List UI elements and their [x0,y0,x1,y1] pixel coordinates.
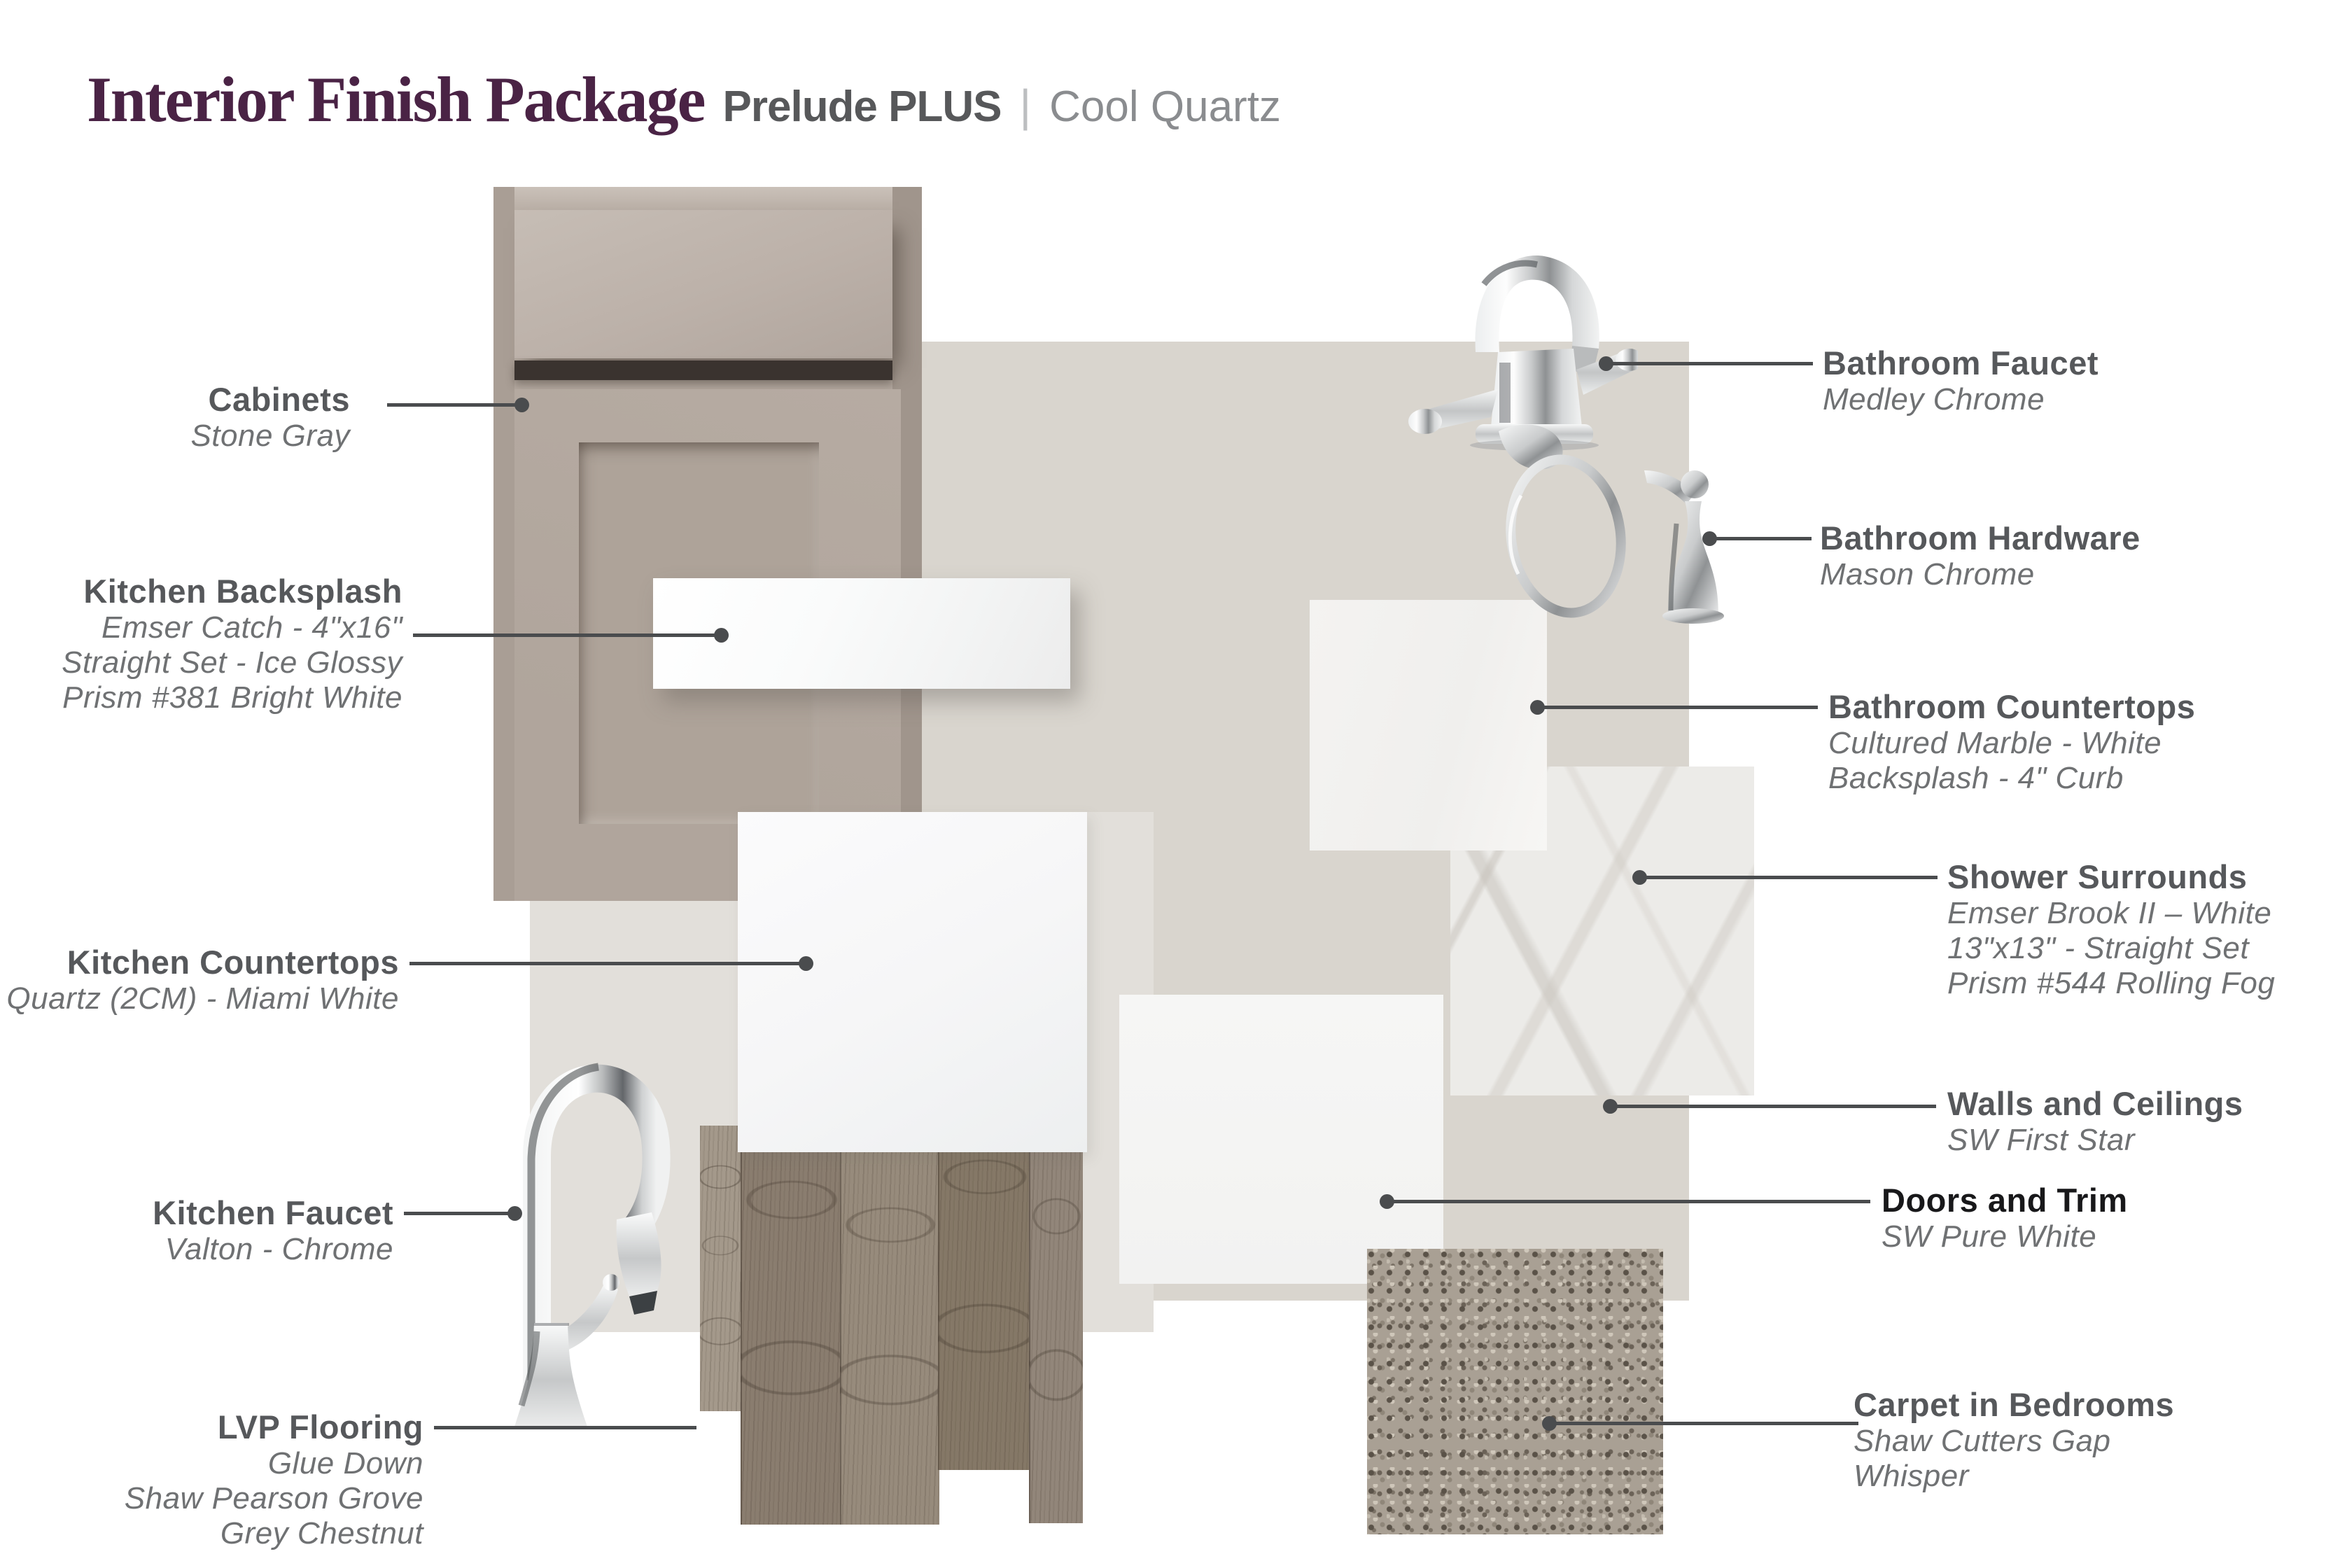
leader-kitchen-faucet [404,1212,518,1215]
label-kitchen-countertops: Kitchen Countertops Quartz (2CM) - Miami… [6,944,399,1016]
label-sub: Quartz (2CM) - Miami White [6,981,399,1016]
header: Interior Finish Package Prelude PLUS | C… [87,67,1281,132]
label-kitchen-faucet: Kitchen Faucet Valton - Chrome [153,1194,393,1267]
label-sub: Shaw Pearson Grove [125,1481,423,1516]
leader-bathroom-faucet [1603,362,1813,365]
label-title: Doors and Trim [1882,1182,2128,1219]
label-sub: Glue Down [125,1446,423,1481]
kitchen-countertop-swatch [738,812,1087,1152]
label-title: Carpet in Bedrooms [1854,1386,2174,1424]
bathroom-hardware-image [1487,412,1732,629]
label-sub: Medley Chrome [1823,382,2099,417]
label-title: Bathroom Faucet [1823,344,2099,382]
label-sub: Grey Chestnut [125,1516,423,1551]
label-title: Kitchen Countertops [6,944,399,981]
label-sub: Stone Gray [190,419,350,454]
label-title: Kitchen Backsplash [62,573,402,610]
cabinet-drawer-front [514,210,892,358]
page-title: Interior Finish Package [87,67,705,132]
finish-package-board: Interior Finish Package Prelude PLUS | C… [0,0,2347,1568]
leader-doors-trim [1384,1200,1870,1203]
label-sub: Backsplash - 4" Curb [1828,761,2195,796]
label-sub: Shaw Cutters Gap [1854,1424,2174,1459]
label-sub: Emser Brook II – White [1947,896,2275,931]
leader-carpet [1546,1422,1858,1425]
label-sub: Emser Catch - 4"x16" [62,610,402,645]
leader-walls-ceilings [1607,1105,1936,1108]
leader-kitchen-backsplash [413,633,724,637]
doors-trim-swatch [1119,995,1443,1284]
label-title: Bathroom Hardware [1820,519,2141,557]
label-sub: Cultured Marble - White [1828,726,2195,761]
leader-bathroom-hardware [1707,537,1812,540]
label-title: Bathroom Countertops [1828,688,2195,726]
label-bathroom-countertops: Bathroom Countertops Cultured Marble - W… [1828,688,2195,796]
label-carpet: Carpet in Bedrooms Shaw Cutters Gap Whis… [1854,1386,2174,1494]
label-lvp-flooring: LVP Flooring Glue Down Shaw Pearson Grov… [125,1408,423,1551]
label-sub: 13"x13" - Straight Set [1947,931,2275,966]
lvp-plank [700,1126,741,1411]
label-kitchen-backsplash: Kitchen Backsplash Emser Catch - 4"x16" … [62,573,402,715]
leader-shower-surrounds [1637,876,1938,879]
label-sub: Prism #381 Bright White [62,680,402,715]
label-sub: SW First Star [1947,1123,2243,1158]
label-bathroom-faucet: Bathroom Faucet Medley Chrome [1823,344,2099,417]
leader-lvp-flooring [434,1426,696,1429]
label-walls-ceilings: Walls and Ceilings SW First Star [1947,1085,2243,1158]
label-title: Cabinets [190,381,350,419]
label-bathroom-hardware: Bathroom Hardware Mason Chrome [1820,519,2141,592]
leader-cabinets [387,403,525,407]
title-divider: | [1020,80,1032,132]
label-doors-trim: Doors and Trim SW Pure White [1882,1182,2128,1254]
cabinet-swatch [493,187,922,901]
leader-bathroom-countertops [1534,706,1818,709]
label-title: Kitchen Faucet [153,1194,393,1232]
kitchen-faucet-image [500,988,696,1428]
bathroom-countertop-swatch [1310,600,1547,850]
label-sub: Prism #544 Rolling Fog [1947,966,2275,1001]
package-name: Prelude PLUS [723,82,1002,132]
leader-kitchen-countertops [409,962,809,965]
label-sub: Straight Set - Ice Glossy [62,645,402,680]
label-sub: Whisper [1854,1459,2174,1494]
palette-name: Cool Quartz [1049,82,1281,132]
label-sub: SW Pure White [1882,1219,2128,1254]
label-cabinets: Cabinets Stone Gray [190,381,350,454]
label-sub: Valton - Chrome [153,1232,393,1267]
label-shower-surrounds: Shower Surrounds Emser Brook II – White … [1947,858,2275,1001]
label-title: Shower Surrounds [1947,858,2275,896]
label-title: Walls and Ceilings [1947,1085,2243,1123]
cabinet-shadow-gap [514,360,892,380]
label-title: LVP Flooring [125,1408,423,1446]
carpet-swatch [1367,1249,1663,1534]
label-sub: Mason Chrome [1820,557,2141,592]
